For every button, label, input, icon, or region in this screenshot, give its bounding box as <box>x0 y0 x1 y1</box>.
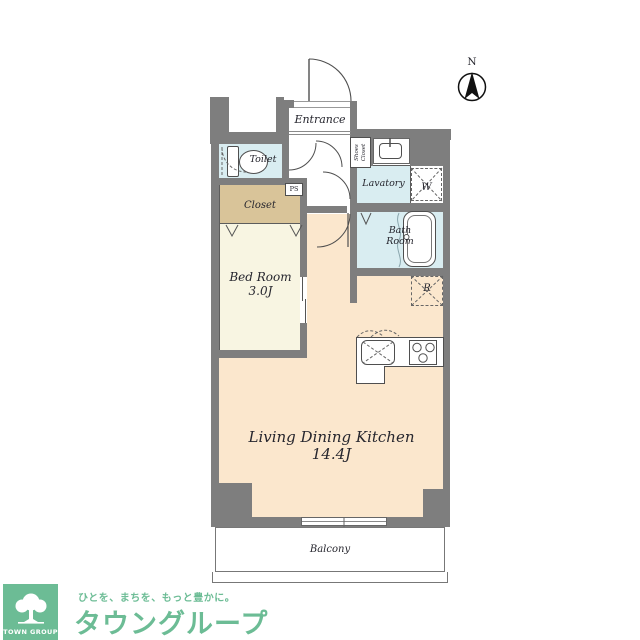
kitchen-stove <box>409 340 437 365</box>
balcony <box>215 527 445 572</box>
ldk-floor-corridor <box>307 212 351 352</box>
ldk-floor-main <box>219 350 444 518</box>
wall-entrance-left <box>282 107 289 181</box>
kitchen-sink <box>361 340 395 365</box>
compass-icon <box>459 72 486 101</box>
wall-bath-bottom <box>350 268 444 276</box>
refrigerator-space <box>411 276 443 306</box>
floor-plan-image: N Entrance Toilet ShoesCloset Lavatory W… <box>0 0 640 640</box>
brand-name: タウングループ <box>74 602 268 640</box>
wall-bottom-left-block <box>211 483 252 527</box>
washbasin <box>379 143 402 159</box>
wall-top-left-pillar <box>210 97 229 144</box>
lavatory-room <box>356 165 411 204</box>
toilet-tank <box>227 146 239 177</box>
wall-right-outer <box>443 140 450 527</box>
bedroom-sliding-door <box>300 277 307 323</box>
wall-left-outer <box>211 144 219 486</box>
pipe-space-box <box>285 183 303 196</box>
kitchen-counter-extension <box>356 366 385 384</box>
wall-lav-bath-left <box>350 166 357 303</box>
compass-n-label: N <box>463 56 481 68</box>
washing-machine-space <box>411 168 442 201</box>
wall-bottom-right-block <box>423 489 449 527</box>
entrance-door-arc <box>309 59 351 101</box>
town-group-badge: TOWN GROUP <box>3 584 58 640</box>
entrance-step-line-2 <box>289 134 351 135</box>
balcony-window-midline <box>302 521 386 522</box>
wall-bedroom-bottom <box>211 350 307 358</box>
bathtub-inner <box>407 215 432 263</box>
kitchen-counter-joint <box>357 365 384 368</box>
badge-text: TOWN GROUP <box>3 628 58 636</box>
wall-bath-top <box>357 203 444 212</box>
balcony-outer-rail <box>212 572 448 583</box>
tree-icon <box>11 590 51 626</box>
entrance-step-line-1 <box>289 131 351 132</box>
entrance-doorway <box>294 101 350 108</box>
shoes-closet-label: ShoesCloset <box>351 137 370 168</box>
bedroom-room <box>219 223 302 351</box>
wall-hall-bottom <box>303 206 347 213</box>
toilet-bowl <box>239 150 268 174</box>
